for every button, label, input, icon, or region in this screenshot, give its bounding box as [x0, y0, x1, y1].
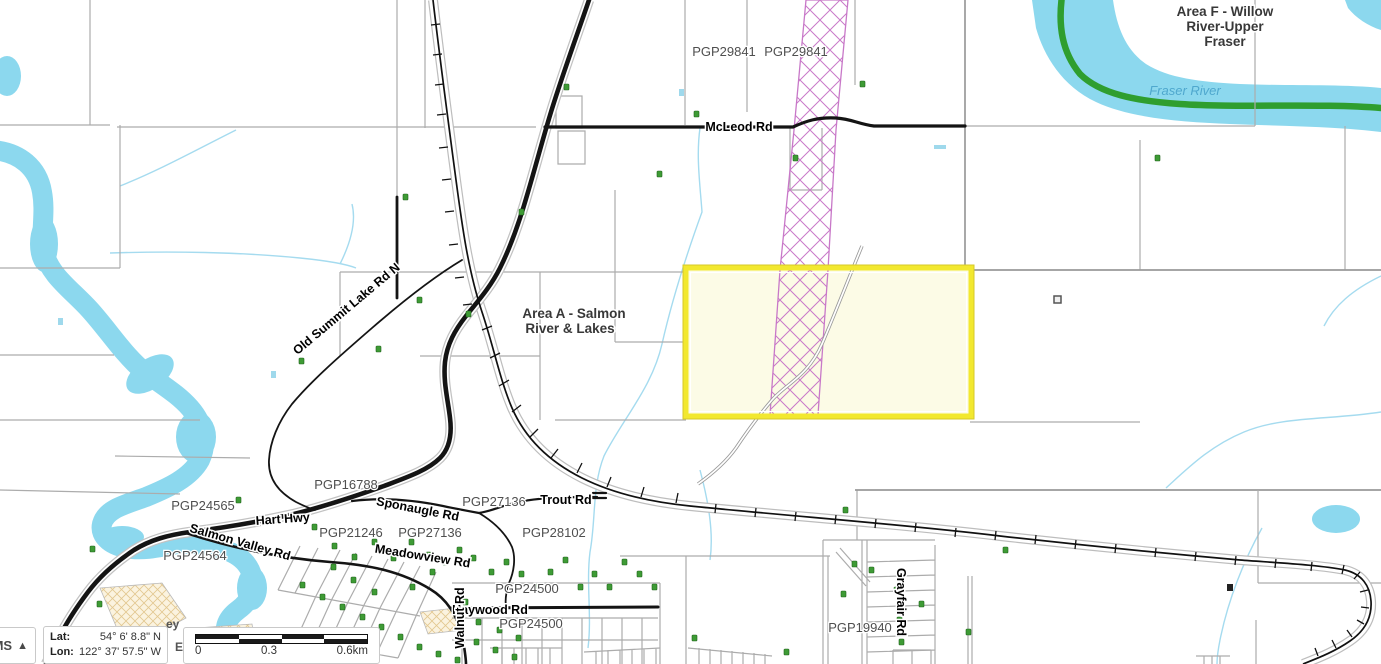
- clipped-label-fragment: E: [175, 640, 183, 654]
- road-label: McLeod Rd: [705, 120, 772, 134]
- parcel-label: PGP24564: [163, 548, 227, 563]
- scale-tick-0: 0: [195, 645, 201, 657]
- scale-bar: [195, 634, 368, 644]
- road-label: Old Summit Lake Rd N: [290, 260, 402, 357]
- road-label: Hart Hwy: [255, 510, 310, 528]
- area-f-label: Area F - Willow: [1177, 4, 1274, 19]
- lat-label: Lat:: [50, 630, 70, 645]
- collapse-arrow-icon: ▲: [17, 640, 28, 652]
- clipped-label-fragment: ey: [166, 617, 179, 631]
- fraser-river-label: Fraser River: [1149, 83, 1221, 98]
- parcel-label: PGP28102: [522, 525, 586, 540]
- collapse-panel-label: OMS: [0, 638, 12, 653]
- map-canvas[interactable]: Area F - Willow River-Upper Fraser Frase…: [0, 0, 1381, 664]
- map-graphics: Area F - Willow River-Upper Fraser Frase…: [0, 0, 1381, 664]
- highlighted-parcel-fill[interactable]: [686, 268, 971, 416]
- parcel-label: PGP24565: [171, 498, 235, 513]
- road-label: Grayfair Rd: [894, 568, 908, 636]
- pond: [0, 56, 21, 96]
- parcel-label: PGP24500: [495, 581, 559, 596]
- collapse-panel-button[interactable]: OMS ▲: [0, 627, 36, 664]
- road-label: Meadowview Rd: [374, 542, 472, 571]
- coordinate-readout: Lat: 54° 6' 8.8" N Lon: 122° 37' 57.5" W: [43, 626, 168, 664]
- lat-value: 54° 6' 8.8" N: [100, 630, 161, 645]
- parcel-label: PGP24500: [499, 616, 563, 631]
- svg-text:Fraser: Fraser: [1204, 34, 1246, 49]
- longitude-row: Lon: 122° 37' 57.5" W: [50, 645, 161, 660]
- parcel-label: PGP19940: [828, 620, 892, 635]
- latitude-row: Lat: 54° 6' 8.8" N: [50, 630, 161, 645]
- parcel-label: PGP29841: [692, 44, 756, 59]
- area-a-label: Area A - Salmon: [522, 306, 625, 321]
- lon-value: 122° 37' 57.5" W: [79, 645, 161, 660]
- road-label: Walnut Rd: [453, 587, 467, 648]
- scale-bar-panel: 0 0.3 0.6km: [183, 627, 380, 664]
- monument-square-symbol: [1054, 296, 1061, 303]
- road-label: Sponaugle Rd: [375, 494, 460, 524]
- svg-text:River & Lakes: River & Lakes: [525, 321, 614, 336]
- svg-text:River-Upper: River-Upper: [1186, 19, 1264, 34]
- parcel-label: PGP16788: [314, 477, 378, 492]
- black-square-symbol: [1227, 584, 1233, 591]
- lon-label: Lon:: [50, 645, 74, 660]
- parcel-label: PGP27136: [398, 525, 462, 540]
- parcel-label: PGP21246: [319, 525, 383, 540]
- parcel-label: PGP27136: [462, 494, 526, 509]
- parcel-label: PGP29841: [764, 44, 828, 59]
- road-label: Trout Rd: [540, 493, 591, 507]
- scale-tick-end: 0.6km: [337, 645, 368, 657]
- pond: [1312, 505, 1360, 533]
- scale-tick-mid: 0.3: [261, 645, 277, 657]
